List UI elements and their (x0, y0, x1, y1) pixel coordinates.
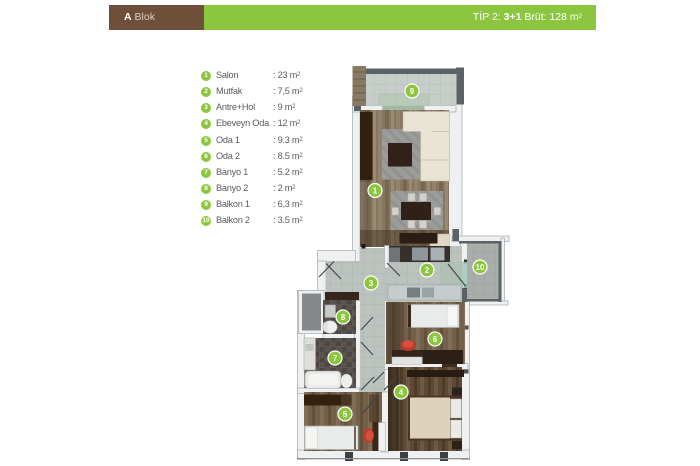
svg-text:2: 2 (425, 266, 430, 275)
svg-text:3: 3 (369, 279, 374, 288)
svg-text:5: 5 (343, 410, 348, 419)
svg-text:6: 6 (433, 335, 438, 344)
svg-text:10: 10 (476, 263, 485, 272)
svg-text:9: 9 (410, 87, 415, 96)
svg-text:1: 1 (373, 187, 378, 196)
svg-text:7: 7 (333, 354, 338, 363)
svg-text:8: 8 (341, 313, 346, 322)
svg-text:4: 4 (399, 388, 404, 397)
